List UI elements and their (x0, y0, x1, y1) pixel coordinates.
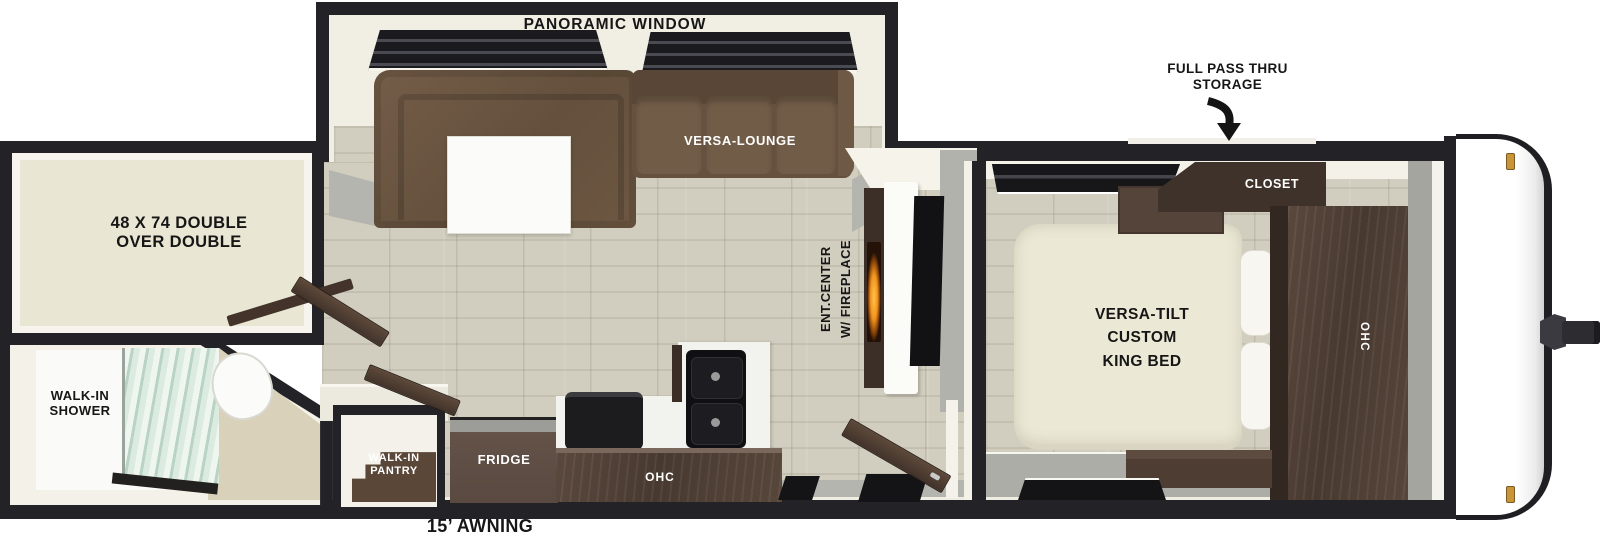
pantry-label: WALK-IN PANTRY (348, 452, 440, 478)
bedroom-window (1018, 478, 1166, 500)
fireplace-flame (867, 242, 881, 342)
storage-label: FULL PASS THRU STORAGE (1130, 61, 1325, 92)
king-bed-label: VERSA-TILT CUSTOM KING BED (1032, 303, 1252, 373)
shower-label-line1: WALK-IN (32, 388, 128, 403)
dinette-table (447, 136, 571, 234)
sofa-armrest (838, 70, 854, 176)
shower-label-line2: SHOWER (32, 403, 128, 418)
storage-arrow-icon (1198, 96, 1250, 142)
marker-light-bottom (1506, 486, 1515, 503)
pantry-label-line1: WALK-IN (348, 452, 440, 465)
floorplan-canvas: PANORAMIC WINDOW 48 X 74 DOUBLE OVER DOU… (0, 0, 1600, 540)
bunk-label-line1: 48 X 74 DOUBLE (44, 214, 314, 233)
bedroom-wall (972, 161, 986, 500)
closet-label: CLOSET (1222, 177, 1322, 192)
bedroom-ohc-label: OHC (1356, 312, 1370, 362)
pantry-label-line2: PANTRY (348, 465, 440, 478)
storage-label-line2: STORAGE (1130, 77, 1325, 93)
panoramic-window-left (368, 30, 608, 71)
front-cap (1456, 139, 1544, 515)
pillow-upper (1240, 250, 1274, 336)
sink-drain-lower (711, 418, 720, 427)
sink-drain-upper (711, 372, 720, 381)
awning-label: 15’ AWNING (398, 516, 562, 537)
front-gray-wall (1408, 161, 1434, 500)
bunk-label-line2: OVER DOUBLE (44, 233, 314, 252)
tv-panel (910, 196, 944, 366)
storage-label-line1: FULL PASS THRU (1130, 61, 1325, 77)
shower-glass (122, 348, 219, 484)
king-bed-label-line2: CUSTOM (1032, 326, 1252, 349)
king-bed-label-line3: KING BED (1032, 350, 1252, 373)
shower-label: WALK-IN SHOWER (32, 388, 128, 418)
bunk-label: 48 X 74 DOUBLE OVER DOUBLE (44, 214, 314, 252)
ent-center-label: ENT.CENTER W/ FIREPLACE (816, 192, 862, 387)
ent-center-label-line1: ENT.CENTER (816, 192, 836, 387)
king-bed-label-line1: VERSA-TILT (1032, 303, 1252, 326)
wardrobe-ohc (1270, 206, 1410, 500)
kitchen-ohc-label: OHC (560, 470, 760, 484)
panoramic-window-label: PANORAMIC WINDOW (430, 16, 800, 34)
bedroom-wall-trim (964, 161, 972, 500)
fridge-label: FRIDGE (450, 452, 558, 468)
front-wall-trim (1432, 161, 1444, 500)
ent-center-label-line2: W/ FIREPLACE (836, 192, 856, 387)
counter-side-panel (672, 345, 682, 402)
entry-door-handle (930, 472, 941, 481)
entry-wall-stub (946, 400, 958, 498)
marker-light-top (1506, 153, 1515, 170)
versa-lounge-label: VERSA-LOUNGE (650, 133, 830, 149)
panoramic-window-right (642, 32, 858, 73)
range-cooktop (565, 392, 643, 450)
pillow-lower (1240, 342, 1274, 430)
hitch-coupler (1562, 321, 1600, 344)
fridge-top (450, 417, 558, 432)
